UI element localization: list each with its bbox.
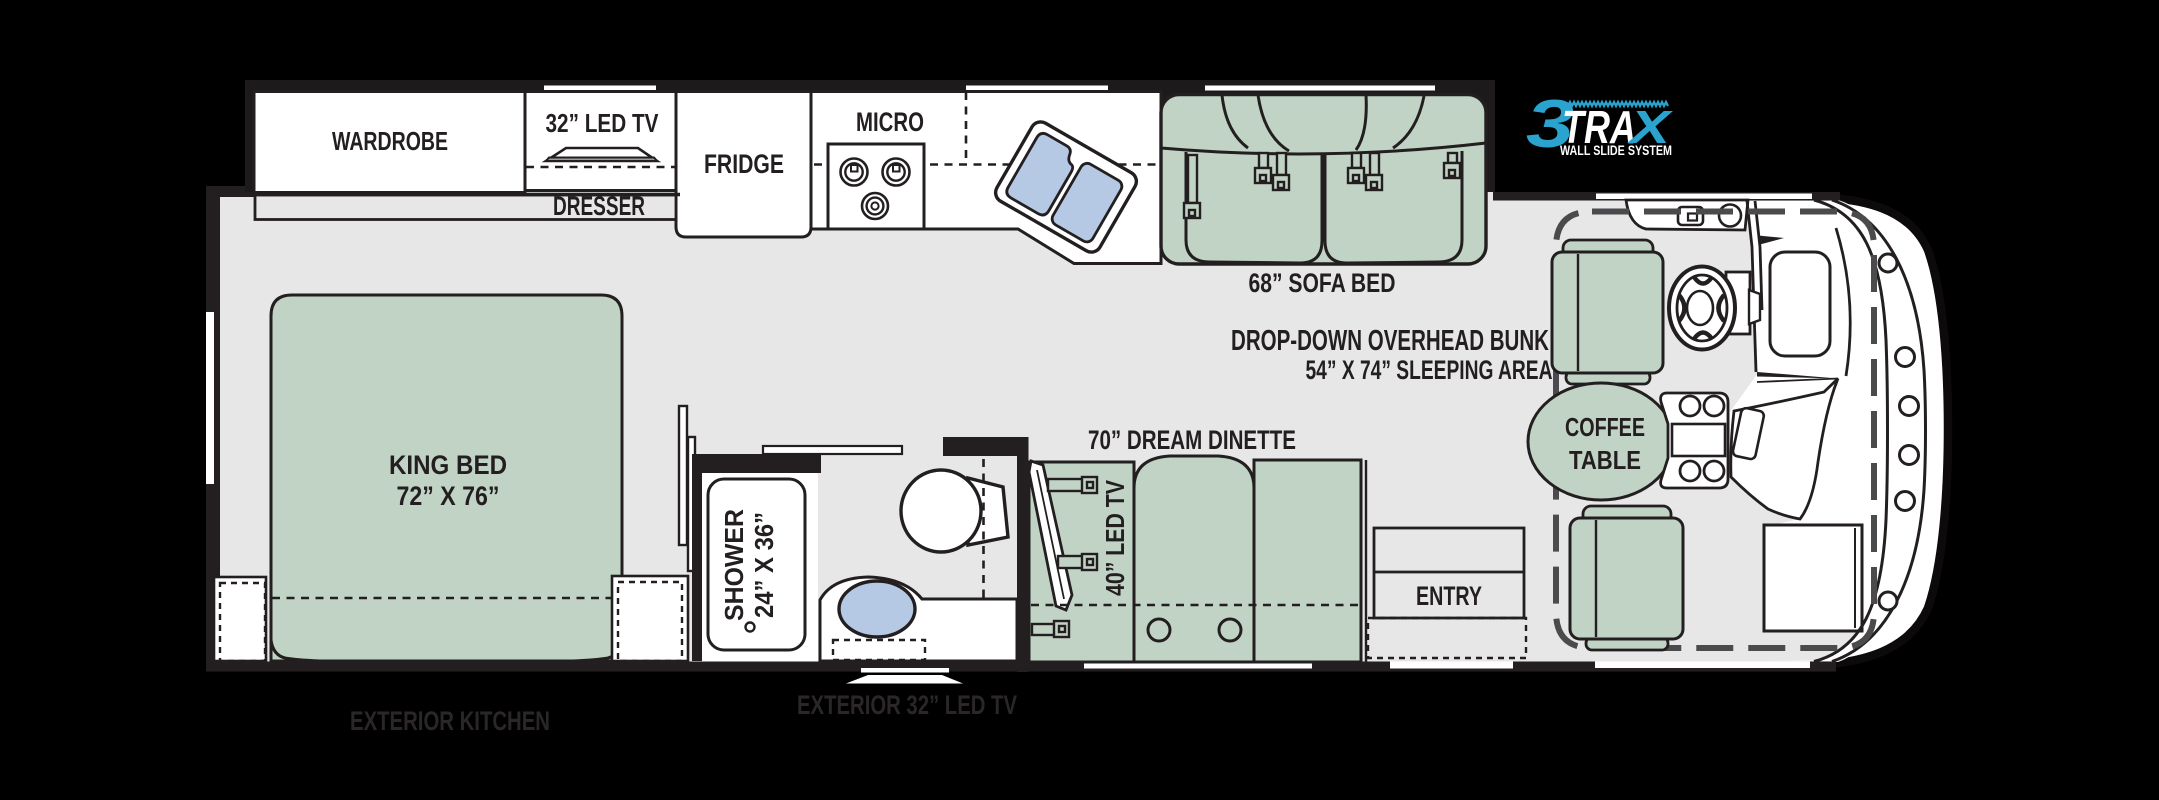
svg-text:SHOWER: SHOWER [719, 509, 749, 621]
svg-text:DRESSER: DRESSER [553, 191, 645, 221]
svg-text:ENTRY: ENTRY [1416, 581, 1482, 611]
svg-text:TABLE: TABLE [1569, 445, 1641, 475]
svg-text:COFFEE: COFFEE [1565, 412, 1645, 442]
svg-text:WARDROBE: WARDROBE [332, 126, 448, 156]
svg-text:68” SOFA BED: 68” SOFA BED [1249, 268, 1396, 298]
svg-text:FRIDGE: FRIDGE [704, 149, 784, 179]
svg-text:DROP-DOWN OVERHEAD BUNK: DROP-DOWN OVERHEAD BUNK [1231, 325, 1549, 357]
svg-text:72” X 76”: 72” X 76” [397, 481, 500, 511]
svg-text:MICRO: MICRO [856, 107, 924, 137]
svg-text:54” X 74” SLEEPING AREA: 54” X 74” SLEEPING AREA [1306, 355, 1553, 385]
svg-text:EXTERIOR KITCHEN: EXTERIOR KITCHEN [350, 706, 550, 736]
svg-text:EXTERIOR 32” LED TV: EXTERIOR 32” LED TV [797, 690, 1017, 720]
svg-text:70” DREAM DINETTE: 70” DREAM DINETTE [1088, 425, 1296, 455]
svg-text:24” X 36”: 24” X 36” [749, 512, 779, 618]
svg-text:KING BED: KING BED [389, 450, 507, 480]
svg-text:32” LED TV: 32” LED TV [546, 108, 660, 138]
svg-text:WALL SLIDE SYSTEM: WALL SLIDE SYSTEM [1560, 142, 1672, 158]
svg-text:40” LED TV: 40” LED TV [1100, 479, 1130, 596]
